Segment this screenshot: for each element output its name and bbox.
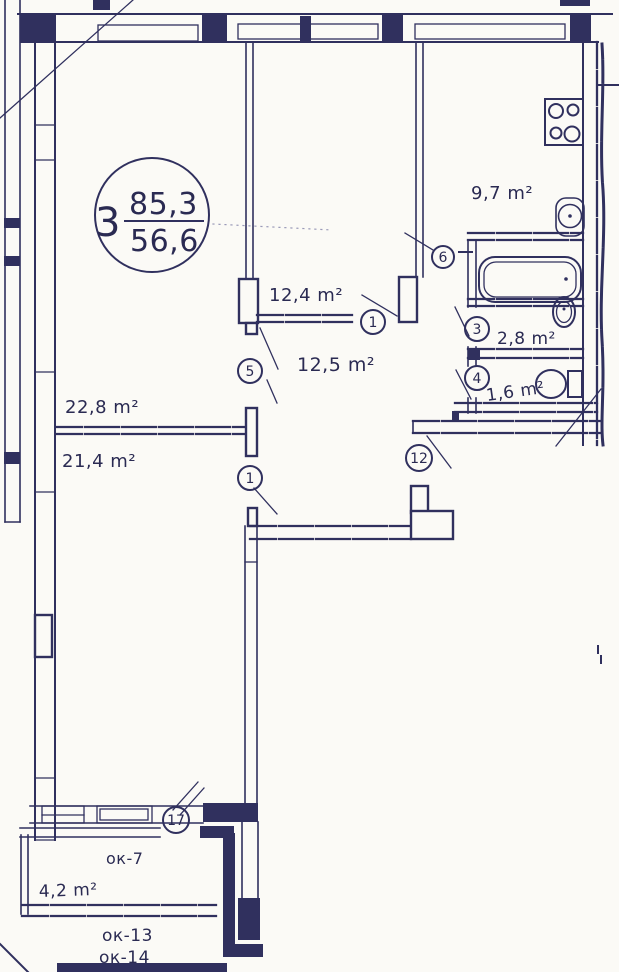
- wc-area-label: 1,6 m²: [485, 378, 546, 406]
- window-label-ok7: ок-7: [106, 849, 143, 868]
- total-area: 85,3: [129, 187, 198, 222]
- plan-marker-12-entry: 12: [406, 445, 432, 471]
- bathtub-icon: [479, 257, 581, 302]
- kitchen-sink-icon: [556, 198, 584, 236]
- living-area: 56,6: [130, 224, 199, 259]
- window-label-ok13: ок-13: [102, 926, 153, 946]
- plan-marker-5-hall-door: 5: [238, 359, 262, 383]
- plan-marker-6-bath-door: 6: [432, 246, 454, 268]
- bedroom-area-label: 12,4 m²: [269, 285, 343, 306]
- interior-walls: [56, 42, 597, 820]
- plan-marker-1-bedroom-door: 1: [361, 310, 385, 334]
- apartment-number: 3: [95, 200, 121, 246]
- floor-plan-page: 3 85,3 56,6 9,7 m² 12,4 m² 12,5 m² 2,8 m…: [0, 0, 619, 972]
- exterior-walls: [0, 0, 618, 972]
- window-labels: ок-7 ок-13 ок-14: [99, 849, 153, 968]
- marker-label: 4: [473, 371, 482, 387]
- window-label-ok14: ок-14: [99, 948, 150, 968]
- room-area-labels: 9,7 m² 12,4 m² 12,5 m² 2,8 m² 1,6 m² 22,…: [38, 183, 555, 902]
- marker-label: 1: [369, 315, 378, 331]
- plan-marker-17-balcony-door: 17: [163, 807, 189, 833]
- marker-label: 17: [167, 813, 185, 829]
- apartment-area-stamp: 3 85,3 56,6: [95, 158, 332, 272]
- wash-basin-icon: [553, 297, 575, 327]
- marker-label: 3: [473, 322, 482, 338]
- bathroom-area-label: 2,8 m²: [497, 329, 556, 349]
- plan-marker-3-bathroom: 3: [465, 317, 489, 341]
- marker-label: 1: [246, 471, 255, 487]
- marker-label: 6: [439, 250, 448, 266]
- hall-area-label: 12,5 m²: [297, 354, 375, 376]
- kitchen-area-label: 9,7 m²: [471, 183, 533, 204]
- balcony-area-label: 4,2 m²: [38, 880, 97, 902]
- stove-icon: [545, 99, 583, 145]
- floor-plan-drawing: 3 85,3 56,6 9,7 m² 12,4 m² 12,5 m² 2,8 m…: [0, 0, 619, 972]
- living-room-area-label: 22,8 m²: [65, 397, 139, 418]
- plan-marker-1-room-door: 1: [238, 466, 262, 490]
- bedroom2-area-label: 21,4 m²: [62, 451, 136, 472]
- marker-label: 12: [410, 451, 428, 467]
- marker-label: 5: [246, 364, 255, 380]
- plan-marker-4-wc: 4: [465, 366, 489, 390]
